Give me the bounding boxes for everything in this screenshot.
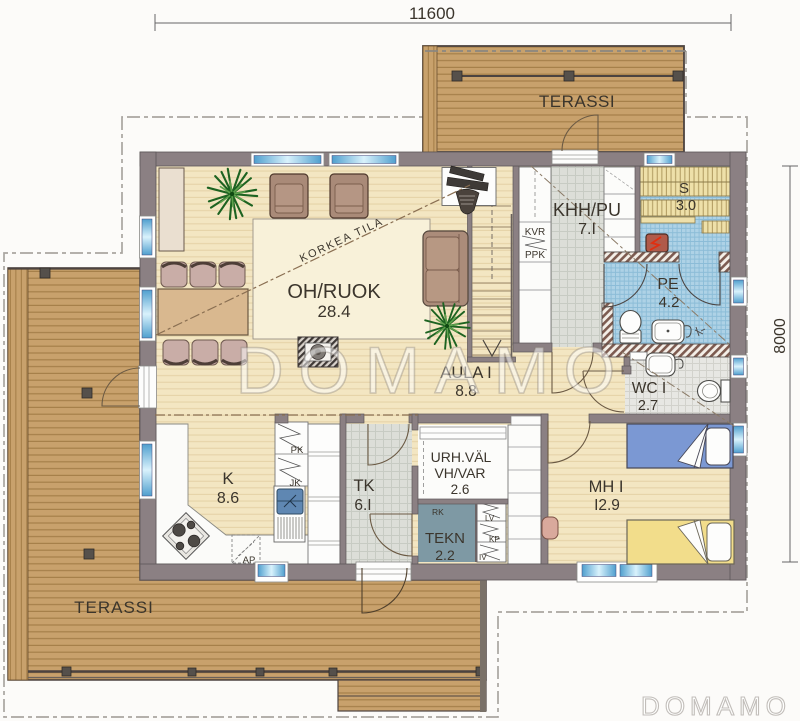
svg-text:KVR: KVR	[525, 227, 546, 238]
svg-text:4.2: 4.2	[659, 294, 680, 311]
svg-text:2.7: 2.7	[638, 398, 658, 414]
svg-text:VH/VAR: VH/VAR	[434, 465, 485, 481]
svg-text:6.I: 6.I	[354, 497, 371, 514]
svg-text:2.2: 2.2	[435, 547, 455, 563]
svg-text:8.6: 8.6	[217, 490, 239, 507]
svg-text:11600: 11600	[409, 4, 455, 23]
svg-text:S: S	[679, 180, 689, 197]
svg-text:PK: PK	[291, 445, 304, 456]
svg-text:3.0: 3.0	[676, 198, 696, 214]
svg-text:2.6: 2.6	[451, 482, 470, 497]
svg-text:PE: PE	[657, 276, 678, 293]
svg-text:WC I: WC I	[632, 380, 666, 397]
svg-text:I2.9: I2.9	[594, 497, 620, 514]
svg-text:TEKN: TEKN	[425, 530, 465, 547]
svg-text:RK: RK	[432, 507, 444, 517]
svg-text:28.4: 28.4	[317, 302, 350, 321]
svg-text:LV: LV	[485, 514, 495, 523]
svg-text:K: K	[222, 469, 234, 488]
svg-text:DOMAMO: DOMAMO	[641, 691, 791, 721]
svg-text:IV: IV	[479, 553, 487, 562]
svg-text:PPK: PPK	[525, 250, 545, 261]
svg-text:URH.VÄL: URH.VÄL	[431, 449, 492, 465]
svg-text:MH I: MH I	[589, 478, 624, 496]
svg-text:8000: 8000	[772, 318, 789, 354]
svg-text:7.I: 7.I	[578, 221, 596, 238]
svg-text:TERASSI: TERASSI	[74, 598, 154, 617]
svg-text:DOMAMO: DOMAMO	[236, 333, 630, 407]
svg-text:KHH/PU: KHH/PU	[553, 200, 621, 220]
svg-text:KP: KP	[489, 535, 500, 544]
svg-text:OH/RUOK: OH/RUOK	[287, 281, 381, 303]
svg-text:TERASSI: TERASSI	[539, 92, 615, 111]
svg-text:JK: JK	[289, 478, 301, 489]
svg-text:TK: TK	[353, 477, 374, 495]
